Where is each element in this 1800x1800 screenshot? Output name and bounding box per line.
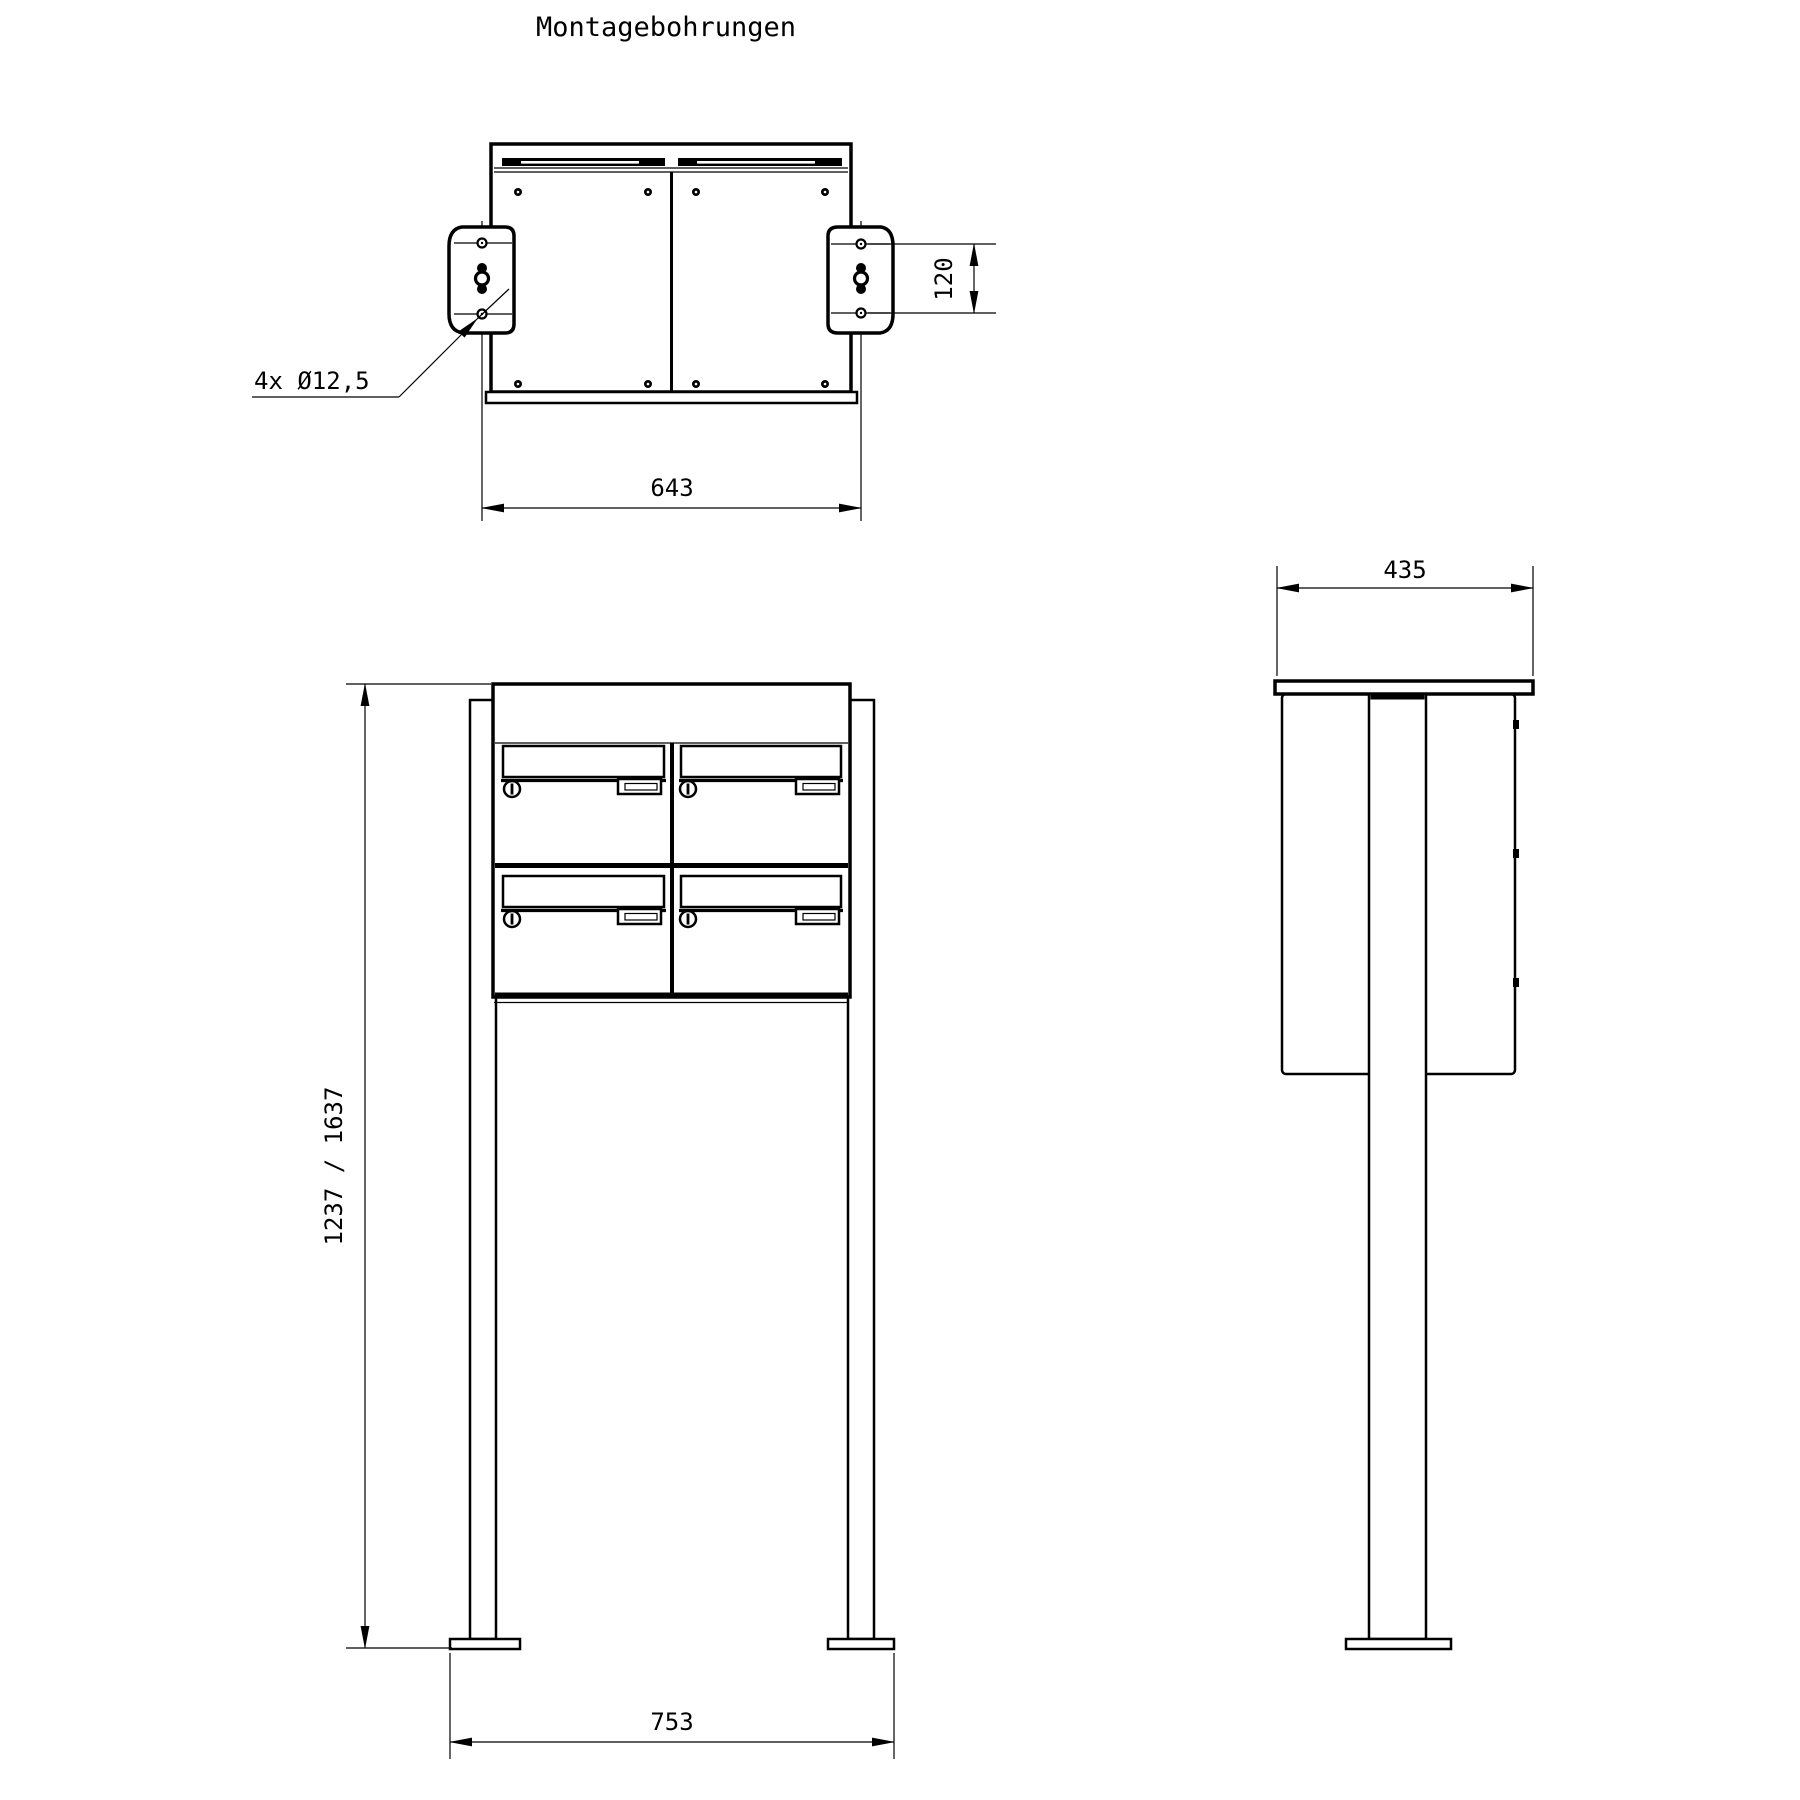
top-view: Montagebohrungen: [252, 12, 996, 521]
side-roof: [1275, 681, 1533, 694]
left-bracket: [449, 227, 514, 333]
dim-base-spacing: 753: [450, 1653, 894, 1759]
side-base-plate: [1346, 1639, 1451, 1649]
dim-643-label: 643: [650, 474, 693, 502]
technical-drawing: Montagebohrungen: [0, 0, 1800, 1800]
drawing-sheet: Montagebohrungen: [0, 0, 1800, 1800]
drill-note-label: 4x Ø12,5: [254, 367, 370, 395]
front-flange: [486, 392, 857, 403]
leg-mount-band: [1371, 694, 1425, 700]
dim-435-label: 435: [1383, 556, 1426, 584]
front-view: 1237 / 1637 753: [320, 684, 894, 1759]
right-bracket: [828, 227, 893, 333]
dim-depth: 435: [1277, 556, 1533, 676]
front-right-leg: [848, 700, 874, 1639]
left-base-plate: [450, 1639, 520, 1649]
dim-120-label: 120: [930, 257, 958, 300]
dim-753-label: 753: [650, 1708, 693, 1736]
right-base-plate: [828, 1639, 894, 1649]
dim-top-width: 643: [482, 474, 861, 508]
dim-height-label: 1237 / 1637: [320, 1087, 348, 1246]
side-view: 435: [1275, 556, 1533, 1649]
dim-height: 1237 / 1637: [320, 684, 491, 1648]
side-leg: [1369, 694, 1426, 1639]
view-title: Montagebohrungen: [536, 12, 796, 43]
